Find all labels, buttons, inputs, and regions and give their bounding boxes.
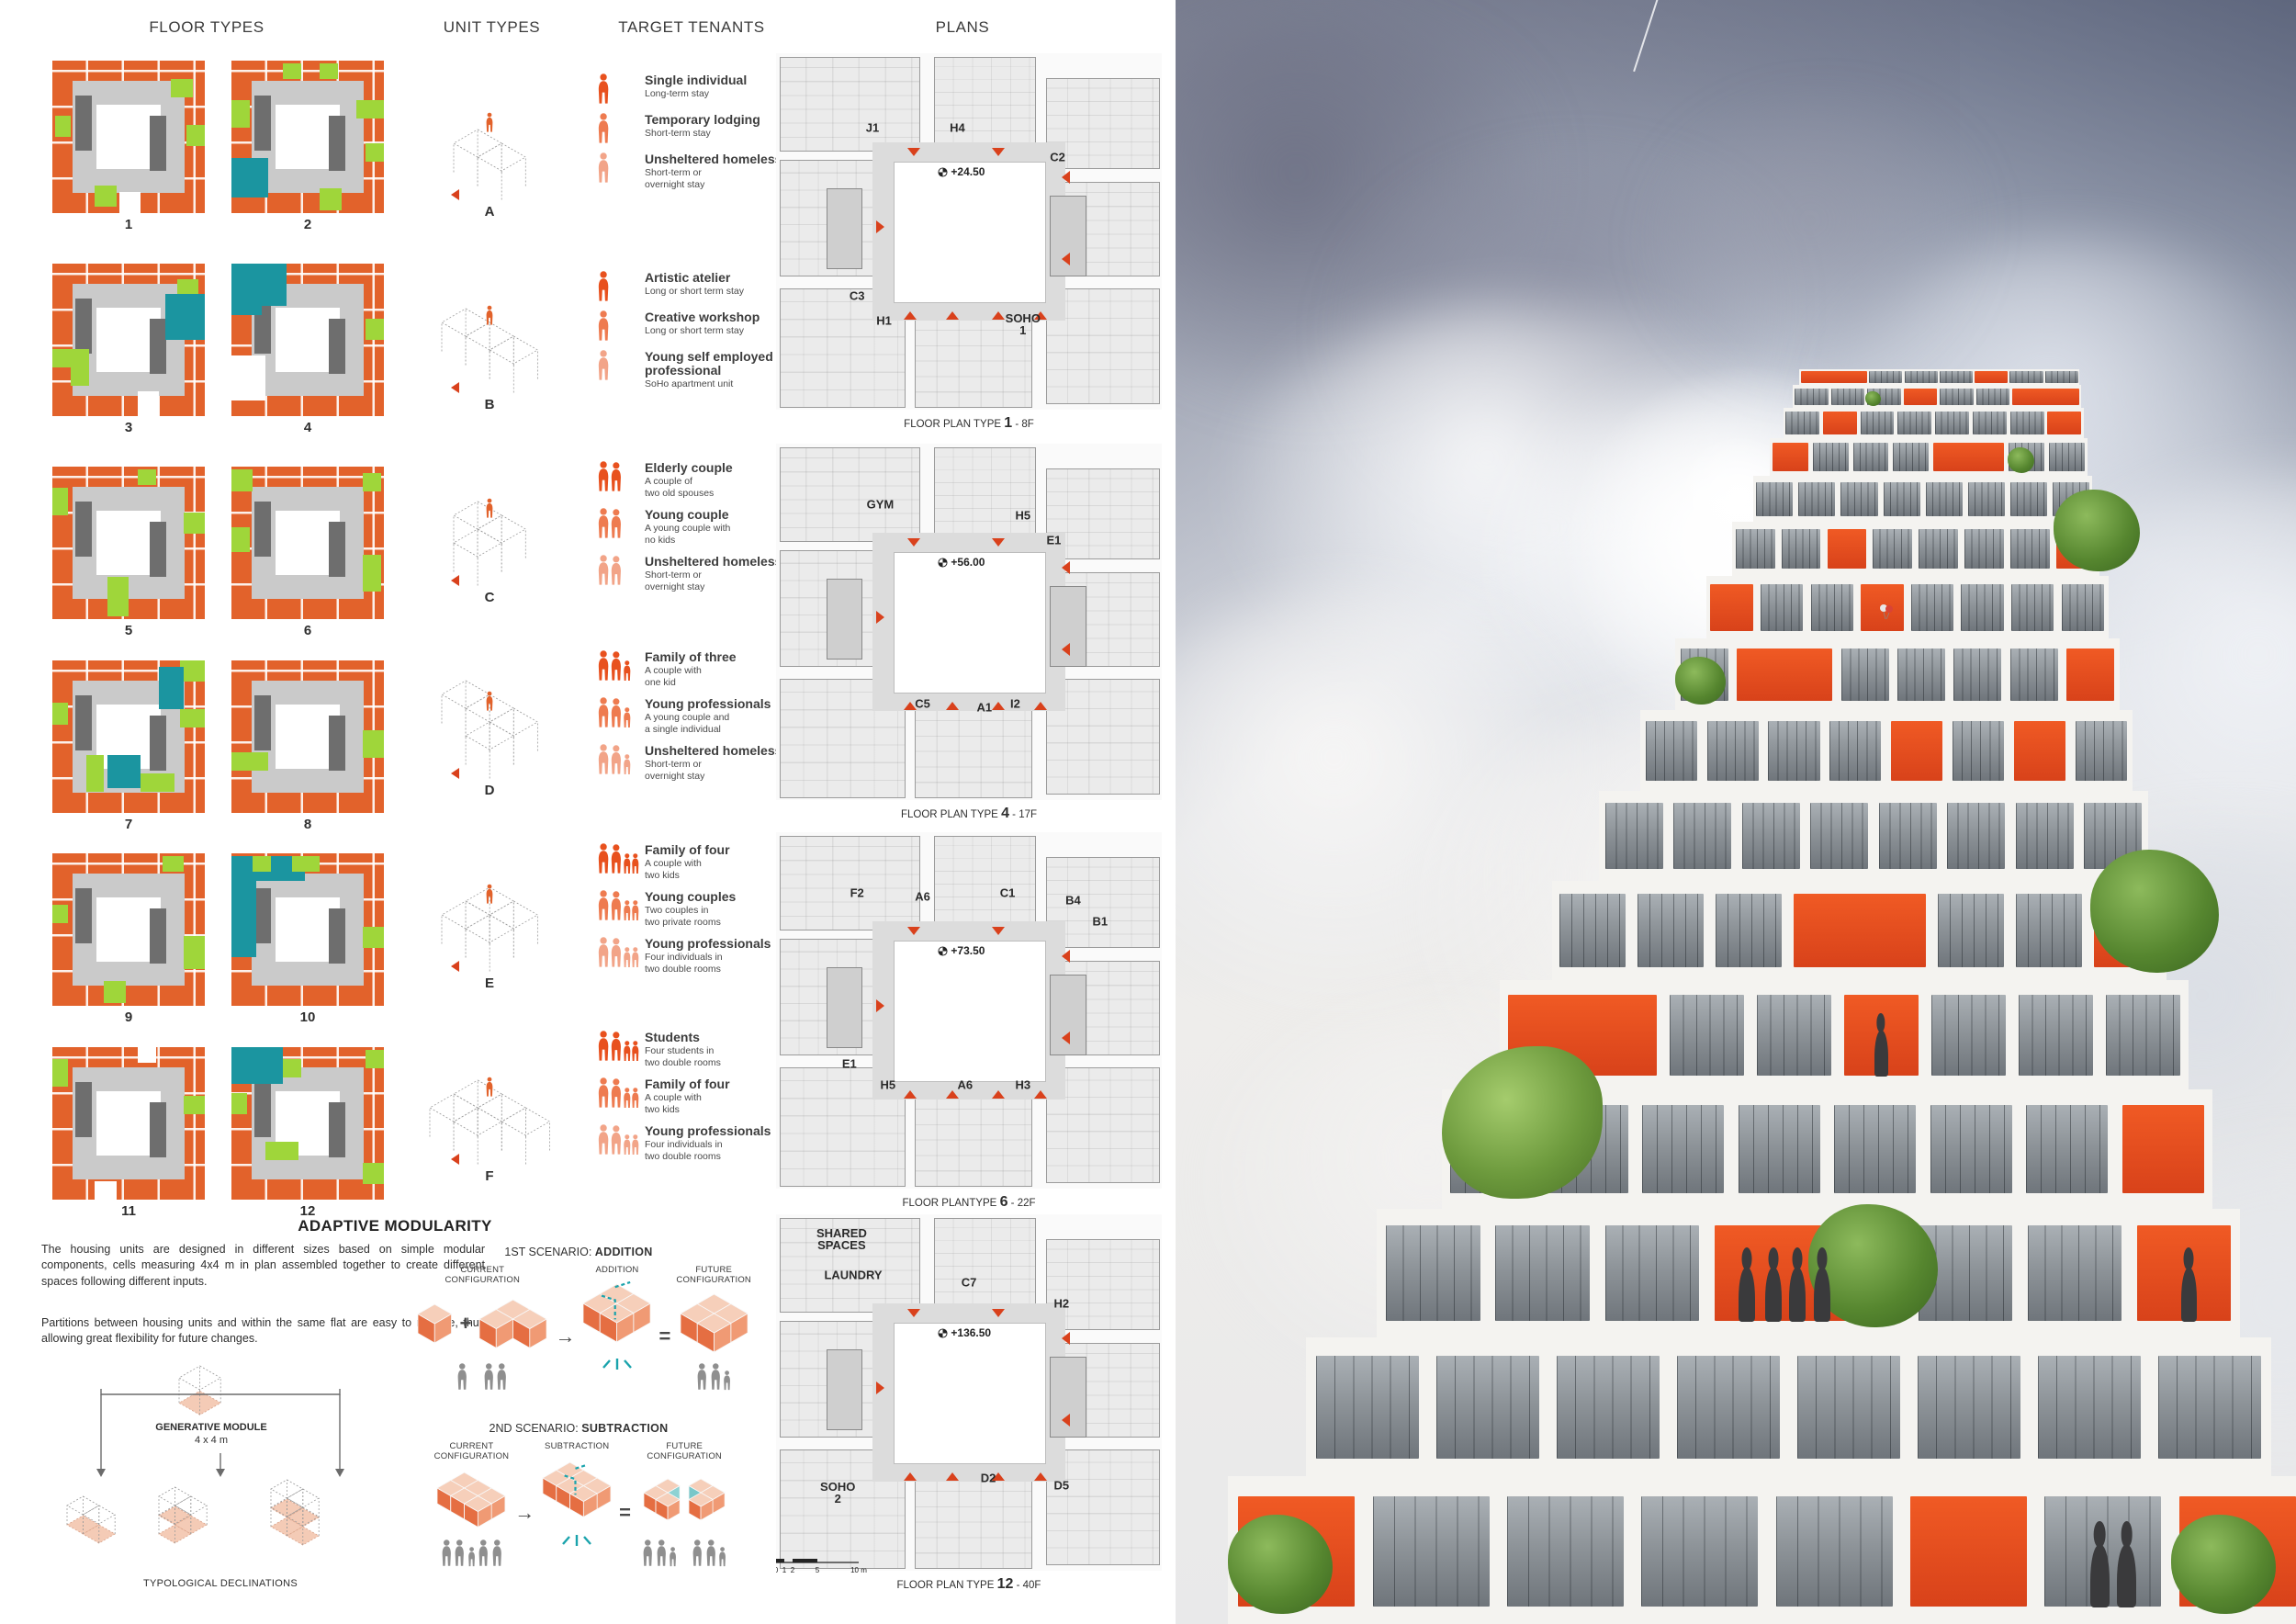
floor-type-accent [52, 1059, 68, 1087]
caption-prefix: FLOOR PLANTYPE [902, 1198, 996, 1209]
window-cell [1897, 648, 1945, 702]
tenant-title: Young couple [645, 508, 730, 522]
window-cell [1976, 389, 2010, 405]
orange-terrace-cell [1933, 443, 2004, 470]
window-cell [1905, 371, 1938, 383]
window-cell [1810, 803, 1868, 869]
room-label-line: C1 [1000, 886, 1016, 898]
window-cell [2010, 529, 2050, 570]
tenant-group: StudentsFour students intwo double rooms… [597, 1031, 804, 1171]
floor-plan: +73.50F2A6C1B4B1E1H5A6H3FLOOR PLANTYPE 6… [776, 832, 1162, 1211]
svg-text:5: 5 [816, 1566, 820, 1573]
typological-cluster [268, 1477, 321, 1552]
room-label: H2 [1053, 1297, 1069, 1309]
entry-arrow-marker [992, 1090, 1005, 1099]
window-cell [1918, 1356, 2021, 1459]
orange-terrace-cell [1910, 1496, 2027, 1607]
scenario-step-label: FUTURE CONFIGURATION [636, 1442, 732, 1462]
floor-type-accent [256, 288, 287, 307]
floor-type-number: 9 [52, 1009, 205, 1025]
floor-type-accent [283, 1059, 301, 1077]
floor-type-accent [366, 143, 384, 162]
room-label: B4 [1065, 894, 1081, 906]
tenant-figures-icon [597, 1031, 643, 1062]
tenant-title: Unsheltered homeless [645, 152, 782, 166]
tenant-figures-icon [597, 113, 643, 144]
entry-arrow-marker [992, 538, 1005, 547]
room-label-line: D5 [1053, 1479, 1069, 1491]
floor-plan-caption: FLOOR PLAN TYPE 4 - 17F [776, 806, 1162, 822]
floor-type-accent [320, 63, 338, 79]
level-annotation: +73.50 [938, 944, 985, 957]
room-label-line: SOHO [1006, 312, 1041, 324]
facade-row [1793, 385, 2080, 408]
floor-type-accent [107, 577, 129, 616]
room-label: D2 [981, 1472, 996, 1483]
scenario-step: ADDITION [580, 1266, 653, 1373]
window-cell [1797, 1356, 1901, 1459]
window-cell [1776, 1496, 1893, 1607]
tenant-description: A young couple and [645, 712, 771, 723]
window-cell [1716, 894, 1782, 967]
room-label: E1 [1046, 534, 1061, 546]
window-cell [2011, 584, 2054, 631]
level-annotation: +24.50 [938, 165, 985, 178]
unit-person-icon [485, 1077, 493, 1101]
scenario-cubes [636, 1464, 732, 1536]
typological-cluster [156, 1484, 209, 1551]
window-cell [1641, 1496, 1758, 1607]
person-silhouette [1765, 1268, 1782, 1322]
unit-isometric-drawing [393, 439, 586, 588]
window-cell [1853, 443, 1889, 470]
window-cell [1968, 482, 2005, 516]
stair-core [827, 967, 863, 1047]
floor-type-number: 3 [52, 420, 205, 435]
tenant-title: Students [645, 1031, 721, 1044]
orange-terrace-cell [1975, 371, 2008, 383]
room-label-line: H2 [1053, 1297, 1069, 1309]
scenario-cubes [580, 1278, 653, 1349]
facade-row [1599, 791, 2148, 881]
window-cell [1782, 529, 1821, 570]
room-label-line: 1 [1006, 324, 1041, 336]
bracket-arrows [37, 1382, 404, 1487]
window-cell [1840, 482, 1877, 516]
svg-text:1: 1 [782, 1566, 787, 1573]
entry-arrow-marker [1034, 1472, 1047, 1481]
room-label-line: F2 [850, 886, 864, 898]
tenant-description: A couple with [645, 1092, 730, 1103]
stair-core [827, 579, 863, 659]
floor-type-accent [366, 319, 384, 340]
room-label: GYM [867, 498, 895, 510]
orange-terrace-cell [2122, 1105, 2204, 1193]
floor-types-heading: FLOOR TYPES [23, 18, 390, 37]
window-cell [2106, 995, 2180, 1076]
floor-type-accent [107, 755, 141, 789]
entry-arrow-marker [876, 999, 884, 1012]
tenant-figures-icon [597, 271, 643, 302]
tenant-title: Artistic atelier [645, 271, 744, 285]
floor-type-accent [52, 488, 68, 515]
window-cell [1940, 389, 1974, 405]
tenant-description: Four students in [645, 1045, 721, 1056]
floor-plan-drawing: +56.00GYMH5E1C5A1I2 [776, 444, 1162, 800]
tenant-item: Family of fourA couple withtwo kids [597, 843, 804, 882]
scenario-people [434, 1539, 510, 1567]
window-cell [1646, 721, 1697, 781]
room-label-line: H1 [876, 314, 892, 326]
entry-arrow-marker [1062, 1332, 1070, 1345]
unit-entry-marker [451, 189, 459, 200]
unit-person-icon [485, 884, 493, 908]
tenant-description: two kids [645, 1104, 730, 1115]
room-label-line: C7 [962, 1276, 977, 1288]
scenario2-title: 2ND SCENARIO: SUBTRACTION [386, 1422, 771, 1435]
room-label-line: C3 [850, 289, 865, 301]
window-cell [2010, 412, 2044, 434]
window-cell [1707, 721, 1759, 781]
tenant-title: Family of four [645, 843, 730, 857]
orange-terrace-cell [2066, 648, 2114, 702]
entry-arrow-marker [946, 702, 959, 710]
floor-plan-caption: FLOOR PLAN TYPE 1 - 8F [776, 415, 1162, 432]
floor-type-number: 2 [231, 217, 384, 232]
room-label: E1 [842, 1058, 857, 1070]
window-cell [1829, 721, 1881, 781]
tenant-figures-icon [597, 650, 643, 682]
room-label-line: SPACES [816, 1239, 867, 1251]
plant-bush [1675, 657, 1726, 705]
floor-type-accent [95, 1181, 116, 1200]
caption-number: 4 [1001, 806, 1009, 821]
tenant-title: Family of four [645, 1077, 730, 1091]
room-label: SOHO1 [1006, 312, 1041, 337]
svg-text:2: 2 [791, 1566, 795, 1573]
floor-type-number: 8 [231, 817, 384, 832]
tenant-title: Young couples [645, 890, 736, 904]
tenant-item: Unsheltered homelessShort-term orovernig… [597, 555, 804, 593]
facade-row [1784, 408, 2084, 438]
floor-type-accent [231, 158, 268, 197]
caption-number: 6 [1000, 1194, 1008, 1210]
window-cell [2010, 482, 2047, 516]
person-silhouette [1789, 1268, 1806, 1322]
balloons [1879, 603, 1894, 620]
window-cell [1742, 803, 1800, 869]
scenario-title-text: 1ST SCENARIO: [504, 1246, 594, 1258]
window-cell [1931, 995, 2006, 1076]
orange-terrace-cell [1794, 894, 1926, 967]
room-label: A6 [915, 890, 930, 902]
scenario-step-label: SUBTRACTION [540, 1442, 613, 1452]
floor-type-accent [165, 294, 205, 340]
window-cell [1961, 584, 2003, 631]
caption-floor: 22F [1018, 1198, 1036, 1209]
tenant-title: Young professionals [645, 937, 771, 951]
floor-type-tile [52, 660, 205, 813]
tenant-group: Elderly coupleA couple oftwo old spouses… [597, 461, 804, 602]
orange-terrace-cell [1823, 412, 1857, 434]
floor-type-accent [86, 755, 105, 792]
unit-type-f: F [393, 1018, 586, 1184]
operator-equals: = [617, 1501, 633, 1525]
scenario-title-bold: ADDITION [595, 1246, 653, 1258]
room-label: C2 [1050, 151, 1065, 163]
window-cell [1893, 443, 1929, 470]
floor-type-accent [186, 125, 205, 146]
tenant-figures-icon [597, 73, 643, 105]
floor-type-number: 7 [52, 817, 205, 832]
tenant-title: Creative workshop [645, 310, 760, 324]
room-label: A1 [976, 701, 992, 713]
unit-person-icon [485, 112, 493, 137]
scenario-step: FUTURE CONFIGURATION [636, 1442, 732, 1567]
scenario-cubes: + [415, 1288, 549, 1359]
window-cell [1795, 389, 1829, 405]
window-cell [1938, 894, 2004, 967]
facade-row [1732, 522, 2099, 576]
room-label-line: H3 [1015, 1079, 1030, 1091]
entry-arrow-marker [1062, 253, 1070, 265]
floor-type-accent [171, 79, 192, 97]
tenant-description: one kid [645, 677, 737, 688]
floor-type-accent [159, 667, 184, 709]
entry-arrow-marker [876, 220, 884, 233]
tenant-description: overnight stay [645, 581, 782, 592]
unit-isometric-drawing [393, 632, 586, 781]
floor-type-accent [363, 927, 384, 948]
scenario-step: FUTURE CONFIGURATION [676, 1266, 751, 1391]
floor-type-accent [366, 1050, 384, 1068]
unit-type-letter: A [393, 204, 586, 220]
floor-type-accent [363, 555, 381, 592]
entry-arrow-marker [992, 148, 1005, 156]
room-label-line: D2 [981, 1472, 996, 1483]
building-render-panel [1176, 0, 2296, 1624]
tenant-item: Unsheltered homelessShort-term orovernig… [597, 152, 804, 191]
window-cell [1841, 648, 1889, 702]
floor-type-accent [184, 513, 205, 534]
plant-tree [2090, 850, 2220, 973]
floor-type-accent [71, 349, 89, 386]
floor-type-accent [363, 730, 384, 758]
floor-plan-drawing: +136.50SHAREDSPACESLAUNDRYC7H2SOHO2D2D5 [776, 1214, 1162, 1571]
window-cell [1869, 371, 1902, 383]
window-cell [2026, 1105, 2108, 1193]
window-cell [1670, 995, 1744, 1076]
orange-terrace-cell [1710, 584, 1752, 631]
level-value: +136.50 [951, 1326, 991, 1339]
room-label: F2 [850, 886, 864, 898]
window-cell [1677, 1356, 1781, 1459]
entry-arrow-marker [992, 311, 1005, 320]
entry-arrow-marker [1062, 950, 1070, 963]
level-value: +56.00 [951, 556, 985, 569]
level-value: +73.50 [951, 944, 985, 957]
tenant-figures-icon [597, 152, 643, 184]
level-annotation: +136.50 [938, 1326, 991, 1339]
person-silhouette [2090, 1545, 2109, 1607]
caption-prefix: FLOOR PLAN TYPE [904, 419, 1001, 430]
tenant-item: Young self employed professionalSoHo apa… [597, 350, 804, 390]
room-label-line: SHARED [816, 1227, 867, 1239]
scenario-step: CURRENT CONFIGURATION [434, 1442, 510, 1567]
entry-arrow-marker [876, 611, 884, 624]
window-cell [1605, 803, 1663, 869]
room-label: C1 [1000, 886, 1016, 898]
operator-arrow: → [553, 1325, 577, 1348]
floor-type-accent [104, 981, 125, 1002]
tenant-figures-icon [597, 461, 643, 492]
scenario-step-label: CURRENT CONFIGURATION [434, 1442, 510, 1462]
floor-type-accent [95, 186, 116, 207]
window-cell [1834, 1105, 1916, 1193]
unit-type-b: B [393, 246, 586, 412]
entry-arrow-marker [904, 311, 917, 320]
facade-row [1640, 710, 2133, 791]
scenario-cubes [540, 1454, 613, 1526]
window-cell [1373, 1496, 1490, 1607]
room-label-line: E1 [1046, 534, 1061, 546]
entry-arrow-marker [876, 1382, 884, 1394]
unit-entry-marker [451, 575, 459, 586]
floor-type-tile [52, 467, 205, 619]
scenario-people [580, 1353, 653, 1373]
unit-type-letter: B [393, 397, 586, 412]
tenant-description: A young couple with [645, 523, 730, 534]
floor-type-accent [265, 1142, 299, 1160]
window-cell [1930, 1105, 2012, 1193]
room-label-line: 2 [820, 1493, 855, 1505]
window-cell [1768, 721, 1819, 781]
window-cell [1761, 584, 1803, 631]
entry-arrow-marker [992, 702, 1005, 710]
room-label: C7 [962, 1276, 977, 1288]
tenant-item: Single individualLong-term stay [597, 73, 804, 105]
operator-equals: = [658, 1325, 673, 1348]
floor-type-number: 6 [231, 623, 384, 638]
room-label: A6 [957, 1079, 973, 1091]
tenant-title: Temporary lodging [645, 113, 760, 127]
floor-type-accent [356, 100, 384, 118]
floor-type-tile [52, 853, 205, 1006]
entry-arrow-marker [992, 1309, 1005, 1317]
floor-type-accent [184, 1096, 205, 1114]
tenant-figures-icon [597, 744, 643, 775]
tenant-description: Four individuals in [645, 952, 771, 963]
window-cell [1739, 1105, 1820, 1193]
typological-cluster [64, 1494, 118, 1551]
courtyard [894, 941, 1046, 1081]
window-cell [1953, 721, 2004, 781]
unit-type-e: E [393, 825, 586, 991]
window-cell [1507, 1496, 1624, 1607]
tenant-item: Young professionalsA young couple anda s… [597, 697, 804, 736]
tenant-description: Long or short term stay [645, 286, 744, 297]
unit-isometric-drawing [393, 825, 586, 974]
caption-prefix: FLOOR PLAN TYPE [901, 809, 998, 820]
tenant-description: A couple with [645, 665, 737, 676]
facade-row [1675, 638, 2119, 710]
scenario-people [415, 1363, 549, 1391]
orange-terrace-cell [2012, 389, 2079, 405]
floor-type-accent [180, 660, 205, 682]
scale-bar: 012510 m [776, 1555, 905, 1578]
tower-facade [1176, 0, 2296, 1624]
target-tenants-heading: TARGET TENANTS [595, 18, 788, 37]
caption-number: 1 [1004, 415, 1012, 431]
room-label: D5 [1053, 1479, 1069, 1491]
floor-type-accent [141, 773, 174, 792]
window-cell [1757, 995, 1831, 1076]
person-silhouette [2117, 1545, 2135, 1607]
typological-declinations-label: TYPOLOGICAL DECLINATIONS [73, 1578, 367, 1590]
room-label: B1 [1092, 915, 1108, 927]
tenant-group: Artistic atelierLong or short term stayC… [597, 271, 804, 399]
entry-arrow-marker [907, 148, 920, 156]
floor-type-accent [253, 856, 271, 872]
tenant-description: Four individuals in [645, 1139, 771, 1150]
floor-type-number: 4 [231, 420, 384, 435]
orange-terrace-cell [1891, 721, 1942, 781]
floor-type-number: 10 [231, 1009, 384, 1025]
tenant-description: Long or short term stay [645, 325, 760, 336]
tenant-item: Young couplesTwo couples intwo private r… [597, 890, 804, 929]
scenario-cubes [676, 1288, 751, 1359]
room-label-line: B1 [1092, 915, 1108, 927]
tenant-group: Family of threeA couple withone kidYoung… [597, 650, 804, 791]
unit-type-a: A [393, 53, 586, 220]
room-label-line: SOHO [820, 1480, 855, 1492]
scenario-people [676, 1363, 751, 1391]
tenant-item: Unsheltered homelessShort-term orovernig… [597, 744, 804, 783]
operator-arrow: → [512, 1501, 536, 1525]
tenant-title: Young professionals [645, 697, 771, 711]
tenant-figures-icon [597, 937, 643, 968]
courtyard [894, 552, 1046, 693]
plant-tree-lg [2054, 490, 2140, 572]
window-cell [1911, 584, 1953, 631]
courtyard [894, 1323, 1046, 1463]
window-cell [1947, 803, 2005, 869]
tenant-figures-icon [597, 310, 643, 342]
floor-type-accent [55, 116, 71, 137]
window-cell [2019, 995, 2093, 1076]
facade-row [1552, 881, 2167, 980]
tenant-figures-icon [597, 1124, 643, 1156]
room-label: H1 [876, 314, 892, 326]
window-cell [1861, 412, 1895, 434]
unit-type-d: D [393, 632, 586, 798]
presentation-board: FLOOR TYPES UNIT TYPES TARGET TENANTS PL… [0, 0, 2296, 1624]
tenant-description: no kids [645, 535, 730, 546]
window-cell [1798, 482, 1835, 516]
tenant-description: overnight stay [645, 771, 782, 782]
entry-arrow-marker [1062, 561, 1070, 574]
window-cell [1605, 1225, 1699, 1321]
room-label-line: H4 [950, 122, 965, 134]
window-cell [1559, 894, 1626, 967]
entry-arrow-marker [907, 538, 920, 547]
orange-terrace-cell [2014, 721, 2065, 781]
window-cell [1642, 1105, 1724, 1193]
window-cell [1316, 1356, 1420, 1459]
scenario1-row: CURRENT CONFIGURATION+→ADDITION=FUTURE C… [386, 1266, 781, 1391]
floor-plan-drawing: +24.50J1H4C2C3H1SOHO1 [776, 53, 1162, 410]
caption-floor: 17F [1019, 809, 1037, 820]
